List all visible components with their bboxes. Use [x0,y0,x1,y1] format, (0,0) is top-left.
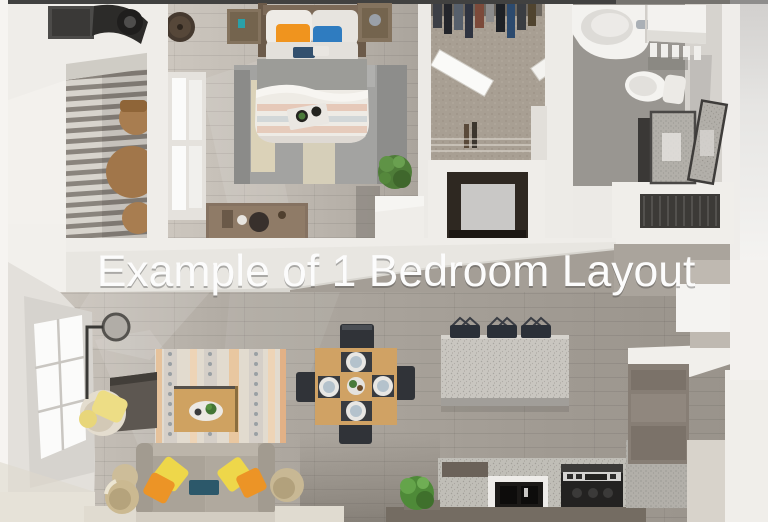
svg-text:Example of 1 Bedroom Layout: Example of 1 Bedroom Layout [97,247,696,296]
